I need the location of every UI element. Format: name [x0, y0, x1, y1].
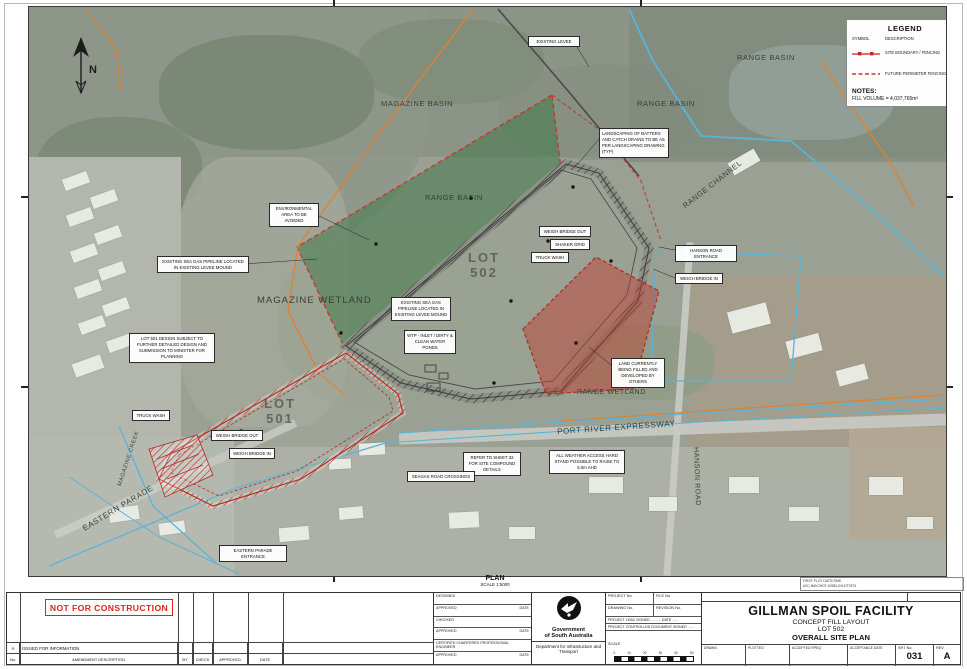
- revision-letter: A: [936, 651, 958, 662]
- callout-weigh-bridge-in-501: WEIGH BRIDGE IN: [229, 448, 275, 459]
- cert-label: DESIGNED: [436, 594, 455, 603]
- legend-item: FUTURE PERIMETER FENCING: [852, 64, 947, 82]
- rev-label: REV: [936, 646, 958, 650]
- plot-info: FIRST PLOT DATE/TIME A2C-NAVCHDT-00381-E…: [800, 577, 964, 591]
- callout-land-filled-by-others: LAND CURRENTLY BEING FILLED AND DEVELOPE…: [611, 358, 665, 388]
- plan-linework: [29, 7, 946, 576]
- callout-weigh-bridge-in-502: WEIGH BRIDGE IN: [675, 273, 723, 284]
- callout-all-weather-access: ALL WEATHER ACCESS HARD STAND POSSIBLE T…: [549, 450, 625, 474]
- title-bottom-row: DRAWN PLOTTED ACCEPTED RPEQ ACCEPTANCE D…: [702, 644, 960, 666]
- north-arrow: N: [59, 33, 103, 104]
- title-block: NOT FOR CONSTRUCTION A ISSUED FOR INFORM…: [6, 592, 961, 665]
- plotted-cell: PLOTTED: [746, 645, 790, 666]
- site-plan-map: N LEGEND SYMBOL DESCRIPTION SITE BOUNDAR…: [28, 6, 947, 577]
- callout-truck-wash-501: TRUCK WASH: [132, 410, 170, 421]
- drawing-title-line2: CONCEPT FILL LAYOUT: [702, 619, 960, 626]
- header-check: CHECK: [193, 654, 213, 665]
- area-label-range-basin-1: RANGE BASIN: [737, 53, 795, 62]
- future-fence-symbol: [852, 64, 882, 82]
- drawing-title-line3: LOT 502: [702, 626, 960, 633]
- area-label-range-basin-2: RANGE BASIN: [637, 99, 695, 108]
- drawing-no-label: DRAWING No.: [606, 605, 654, 616]
- callout-environmental-area: ENVIRONMENTAL AREA TO BE AVOIDED: [269, 203, 319, 227]
- cert-label: CHECKED: [436, 618, 454, 627]
- legend-notes-title: NOTES:: [852, 88, 947, 95]
- project-no-label: PROJECT No.: [606, 593, 654, 604]
- cert-label: APPROVED: [436, 606, 457, 615]
- callout-lot501-design-note: LOT 501 DESIGN SUBJECT TO FURTHER DETAIL…: [129, 333, 215, 363]
- plan-caption: PLAN SCALE 1:5000: [430, 575, 560, 587]
- callout-hanson-road-entrance: HANSON ROAD ENTRANCE: [675, 245, 737, 262]
- cert-label: APPROVED: [436, 629, 457, 638]
- legend-title: LEGEND: [852, 24, 947, 33]
- title-top-cell: [907, 593, 960, 601]
- header-by: BY: [178, 654, 193, 665]
- callout-seagas-pipeline-central: EXISTING SEA GAS PIPELINE LOCATED IN EXI…: [391, 297, 451, 321]
- legend-panel: LEGEND SYMBOL DESCRIPTION SITE BOUNDARY …: [846, 19, 947, 107]
- certification-block: DESIGNED APPROVEDDATE CHECKED APPROVEDDA…: [433, 593, 531, 664]
- sheet-number-cell: SHT No. 031: [896, 645, 934, 666]
- accepted-cell: ACCEPTED RPEQ: [790, 645, 848, 666]
- revision-no-label: REVISION No.: [654, 605, 701, 616]
- header-no: No.: [7, 654, 20, 665]
- lot-502-label: LOT 502: [461, 251, 507, 281]
- file-no-label: FILE No.: [654, 593, 701, 604]
- acceptance-date-cell: ACCEPTANCE DATE: [848, 645, 896, 666]
- project-lead-line: PROJECT LEAD SIGNED .......... DATE ....…: [606, 617, 701, 624]
- callout-weigh-bridge-out-502: WEIGH BRIDGE OUT: [539, 226, 591, 237]
- drawing-title-line1: GILLMAN SPOIL FACILITY: [702, 602, 960, 618]
- svg-text:N: N: [89, 64, 97, 76]
- callout-weigh-bridge-out-501: WEIGH BRIDGE OUT: [211, 430, 263, 441]
- border-tick: [21, 196, 28, 198]
- area-label-range-basin-3: RANGE BASIN: [425, 193, 483, 202]
- drawn-cell: DRAWN: [702, 645, 746, 666]
- sa-government-logo: [556, 595, 582, 621]
- callout-landscaping: LANDSCAPING OF BATTERS AND CATCH DRAINS …: [599, 128, 669, 158]
- revision-cell: REV A: [934, 645, 960, 666]
- area-label-range-wetland: RANGE WETLAND: [577, 389, 646, 396]
- callout-truck-wash-502: TRUCK WASH: [531, 252, 569, 263]
- legend-symbol-header: SYMBOL: [852, 36, 885, 41]
- border-tick: [946, 386, 953, 388]
- drawing-title-block: GILLMAN SPOIL FACILITY CONCEPT FILL LAYO…: [701, 593, 960, 664]
- project-block: PROJECT No. FILE No. DRAWING No. REVISIO…: [605, 593, 701, 664]
- header-extra: [283, 654, 433, 665]
- sheet-no-label: SHT No.: [898, 646, 931, 650]
- border-tick: [946, 196, 953, 198]
- callout-seagas-pipeline-west: EXISTING SEA GAS PIPELINE LOCATED IN EXI…: [157, 256, 249, 273]
- callout-eastern-parade-entrance: EASTERN PARADE ENTRANCE: [219, 545, 287, 562]
- project-controlled-line: PROJECT CONTROLLED DOCUMENT SIGNED .....…: [606, 624, 701, 631]
- cert-label: CERTIFIED CHARTERED PROFESSIONAL ENGINEE…: [436, 641, 529, 650]
- border-tick: [21, 386, 28, 388]
- header-amendment-description: AMENDMENT DESCRIPTION: [20, 654, 178, 665]
- legend-item: SITE BOUNDARY / FENCING: [852, 44, 947, 62]
- area-label-magazine-basin: MAGAZINE BASIN: [381, 99, 453, 108]
- sheet-number: 031: [898, 651, 931, 662]
- callout-seagas-road-crossings: SEAGAS ROAD CROSSINGS: [407, 471, 475, 482]
- not-for-construction-stamp: NOT FOR CONSTRUCTION: [45, 599, 173, 616]
- header-approved: APPROVED: [213, 654, 248, 665]
- scale-ticks: 01020304050: [614, 651, 694, 655]
- department-name: Department for Infrastructure and Transp…: [532, 641, 605, 655]
- legend-item-label: FUTURE PERIMETER FENCING: [885, 71, 946, 76]
- callout-wtp-ponds: WTP - INLET / DIRTY & CLEAN WATER PONDS: [404, 330, 456, 354]
- site-boundary-symbol: [852, 44, 882, 62]
- drawing-title-line4: OVERALL SITE PLAN: [702, 633, 960, 642]
- area-label-magazine-wetland: MAGAZINE WETLAND: [257, 295, 372, 306]
- header-date: DATE: [248, 654, 283, 665]
- plan-caption-scale: SCALE 1:5000: [430, 582, 560, 587]
- scale-bar: [614, 656, 694, 662]
- legend-description-header: DESCRIPTION: [885, 36, 914, 41]
- scale-label: SCALE: [608, 642, 620, 646]
- callout-shaker-grid: SHAKER GRID: [550, 239, 590, 250]
- drawing-sheet: N LEGEND SYMBOL DESCRIPTION SITE BOUNDAR…: [0, 0, 967, 669]
- agency-block: Government of South Australia Department…: [531, 593, 605, 664]
- callout-existing-levee: EXISTING LEVEE: [528, 36, 580, 47]
- legend-item-label: SITE BOUNDARY / FENCING: [885, 50, 940, 55]
- plot-info-line2: A2C-NAVCHDT-00381-EH-DT0T01: [803, 584, 961, 589]
- plan-caption-title: PLAN: [430, 575, 560, 582]
- cert-label: APPROVED: [436, 653, 457, 663]
- lot-501-label: LOT 501: [257, 397, 303, 427]
- gov-line2: of South Australia: [532, 633, 605, 639]
- revision-header-row: No. AMENDMENT DESCRIPTION BY CHECK APPRO…: [7, 653, 433, 665]
- title-top-strip: [702, 593, 960, 602]
- legend-notes-text: FILL VOLUME = 4,037,765m³: [852, 96, 947, 102]
